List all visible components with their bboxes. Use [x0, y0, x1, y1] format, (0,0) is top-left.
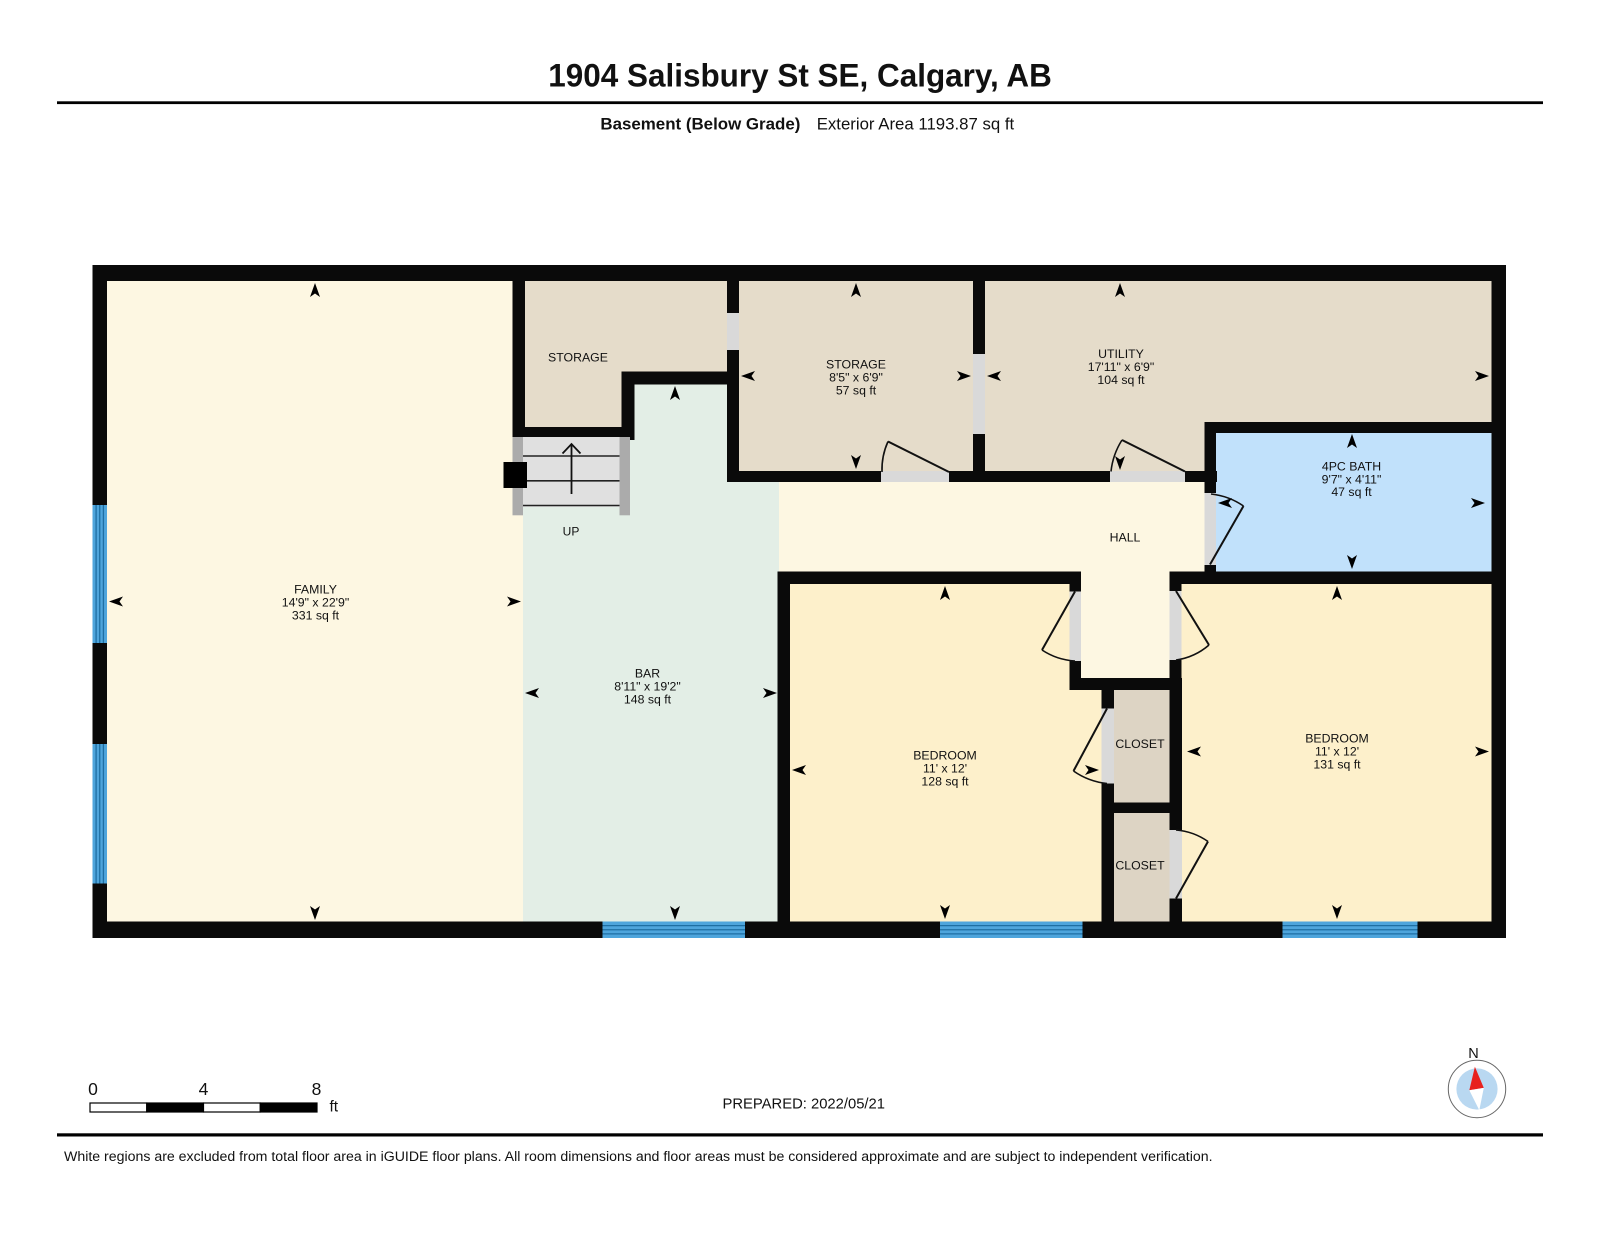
svg-text:ft: ft [330, 1099, 339, 1116]
svg-text:104 sq ft: 104 sq ft [1097, 373, 1145, 387]
svg-text:57 sq ft: 57 sq ft [836, 383, 877, 397]
svg-text:148 sq ft: 148 sq ft [624, 692, 672, 706]
svg-text:128 sq ft: 128 sq ft [921, 774, 969, 788]
svg-text:PREPARED: 2022/05/21: PREPARED: 2022/05/21 [723, 1097, 886, 1113]
svg-text:4: 4 [199, 1079, 209, 1099]
svg-text:N: N [1468, 1046, 1478, 1062]
svg-text:CLOSET: CLOSET [1115, 737, 1165, 751]
svg-text:331 sq ft: 331 sq ft [292, 608, 340, 622]
svg-text:STORAGE: STORAGE [548, 351, 608, 365]
svg-text:8: 8 [312, 1079, 322, 1099]
svg-text:White regions are excluded fro: White regions are excluded from total fl… [64, 1149, 1213, 1165]
svg-text:UP: UP [563, 525, 580, 539]
svg-text:CLOSET: CLOSET [1115, 859, 1165, 873]
svg-text:131 sq ft: 131 sq ft [1313, 757, 1361, 771]
svg-text:1904 Salisbury St SE, Calgary,: 1904 Salisbury St SE, Calgary, AB [548, 58, 1052, 94]
svg-text:HALL: HALL [1110, 531, 1141, 545]
svg-text:0: 0 [88, 1079, 98, 1099]
svg-text:Exterior Area 1193.87 sq ft: Exterior Area 1193.87 sq ft [817, 115, 1015, 134]
svg-text:Basement (Below Grade): Basement (Below Grade) [600, 115, 800, 134]
svg-text:47 sq ft: 47 sq ft [1331, 485, 1372, 499]
